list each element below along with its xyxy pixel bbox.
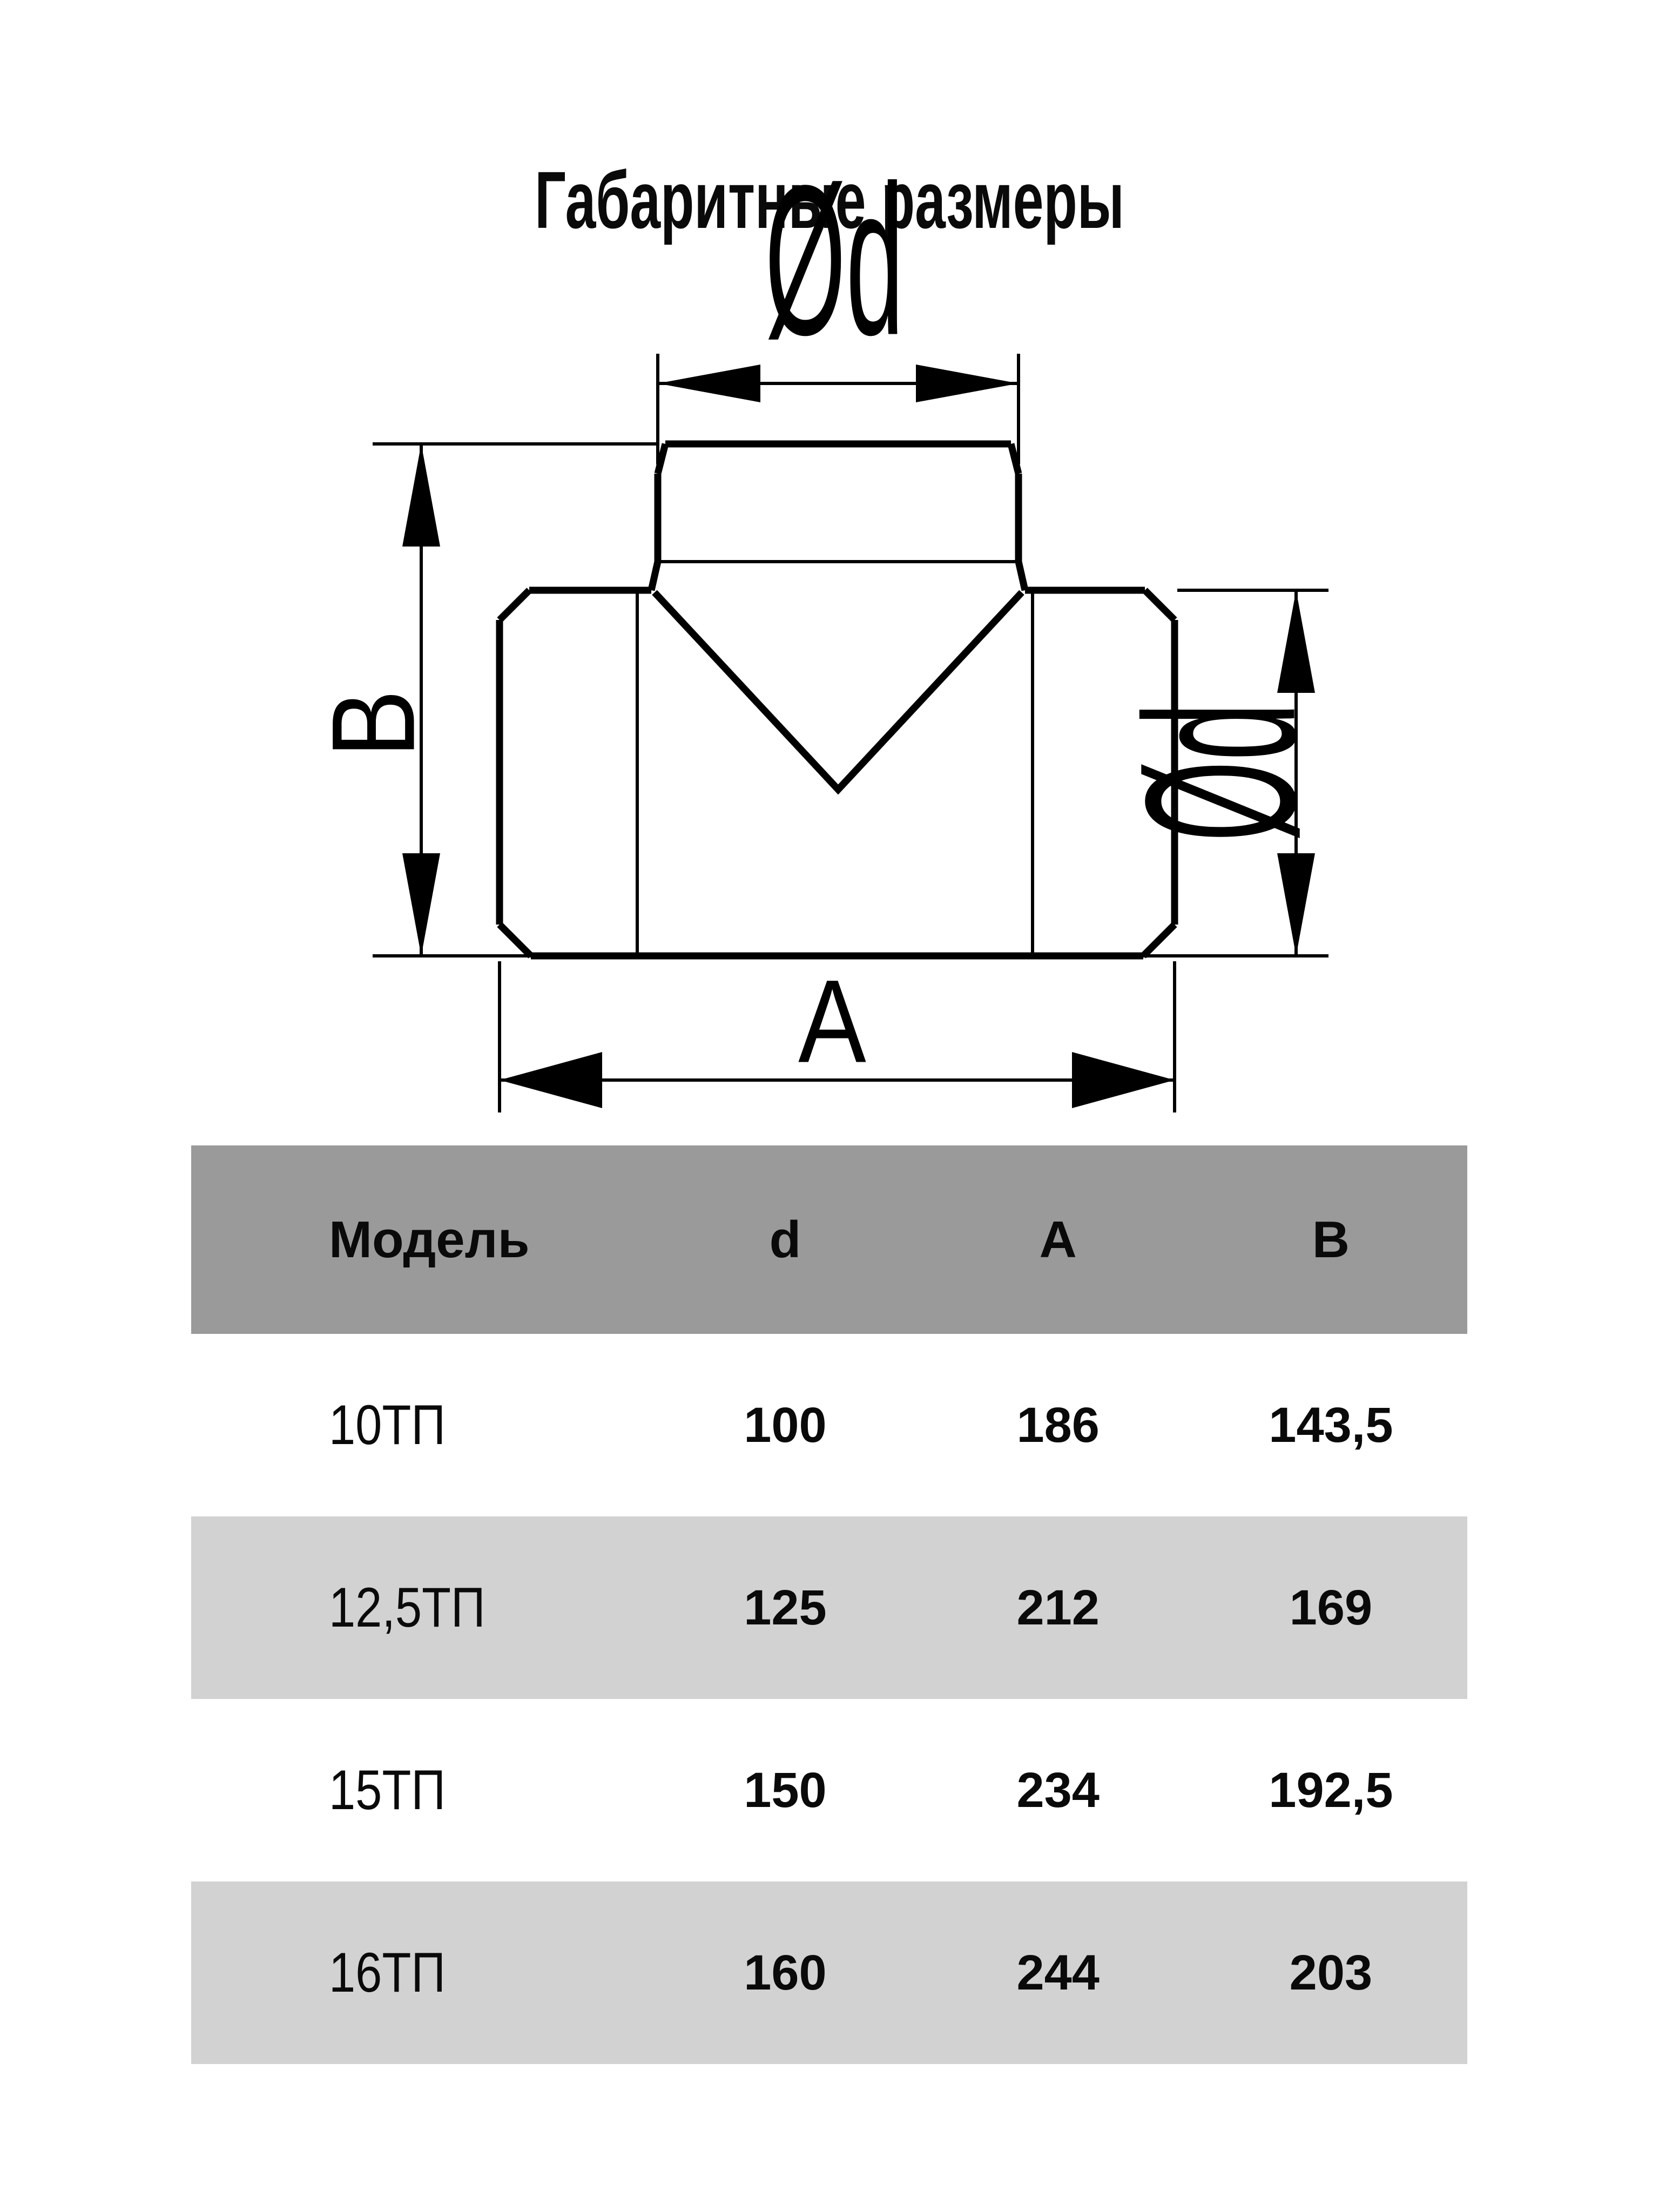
model-label: 15ТП (329, 1758, 446, 1823)
table-row: 15ТП 150 234 192,5 (191, 1699, 1467, 1881)
arrowhead-up-icon (1277, 590, 1315, 693)
b-cell: 203 (1195, 1945, 1467, 2001)
branch-flare-left (651, 562, 658, 590)
model-cell: 12,5ТП (191, 1576, 649, 1640)
column-header-a: A (922, 1210, 1195, 1270)
model-label: 10ТП (329, 1393, 446, 1458)
b-cell: 169 (1195, 1580, 1467, 1636)
a-cell: 234 (922, 1762, 1195, 1819)
model-label: 16ТП (329, 1941, 446, 2005)
dimension-side-diameter: Ød (1101, 590, 1339, 956)
table-header-row: Модель d A B (191, 1145, 1467, 1334)
arrowhead-left-icon (658, 365, 760, 402)
d-cell: 125 (649, 1580, 921, 1636)
arrowhead-right-icon (916, 365, 1019, 402)
dimensions-table: Модель d A B 10ТП 100 186 143,5 12,5ТП 1… (191, 1145, 1467, 2064)
arrowhead-down-icon (1277, 853, 1315, 956)
model-cell: 15ТП (191, 1758, 649, 1823)
body-chamfer-bottom-right (1143, 925, 1175, 956)
table-row: 10ТП 100 186 143,5 (191, 1334, 1467, 1516)
arrowhead-up-icon (402, 444, 440, 547)
b-cell: 143,5 (1195, 1397, 1467, 1454)
tee-fitting-outline (500, 444, 1175, 956)
dimensional-drawing: Ød B Ød A (0, 0, 1659, 1145)
model-cell: 16ТП (191, 1941, 649, 2005)
table-row: 16ТП 160 244 203 (191, 1881, 1467, 2064)
arrowhead-left-icon (500, 1052, 602, 1108)
column-header-d: d (649, 1210, 921, 1270)
table-row: 12,5ТП 125 212 169 (191, 1516, 1467, 1699)
a-cell: 186 (922, 1397, 1195, 1454)
b-cell: 192,5 (1195, 1762, 1467, 1819)
d-cell: 150 (649, 1762, 921, 1819)
branch-flare-right (1019, 562, 1025, 590)
arrowhead-down-icon (402, 853, 440, 956)
model-label: 12,5ТП (329, 1576, 485, 1640)
body-chamfer-top-right (1145, 590, 1175, 620)
a-cell: 212 (922, 1580, 1195, 1636)
v-notch (655, 592, 1022, 790)
a-cell: 244 (922, 1945, 1195, 2001)
column-header-model: Модель (191, 1210, 649, 1270)
dim-label-length: A (798, 955, 866, 1087)
d-cell: 100 (649, 1397, 921, 1454)
dimension-top-diameter: Ød (658, 140, 1019, 464)
body-chamfer-bottom-left (500, 925, 531, 956)
d-cell: 160 (649, 1945, 921, 2001)
dimension-length-A: A (500, 955, 1175, 1112)
body-chamfer-top-left (500, 590, 529, 620)
model-cell: 10ТП (191, 1393, 649, 1458)
dim-label-side-diameter: Ød (1101, 703, 1339, 842)
arrowhead-right-icon (1072, 1052, 1175, 1108)
dim-label-height: B (307, 690, 439, 758)
dim-label-top-diameter: Ød (765, 140, 904, 379)
column-header-b: B (1195, 1210, 1467, 1270)
